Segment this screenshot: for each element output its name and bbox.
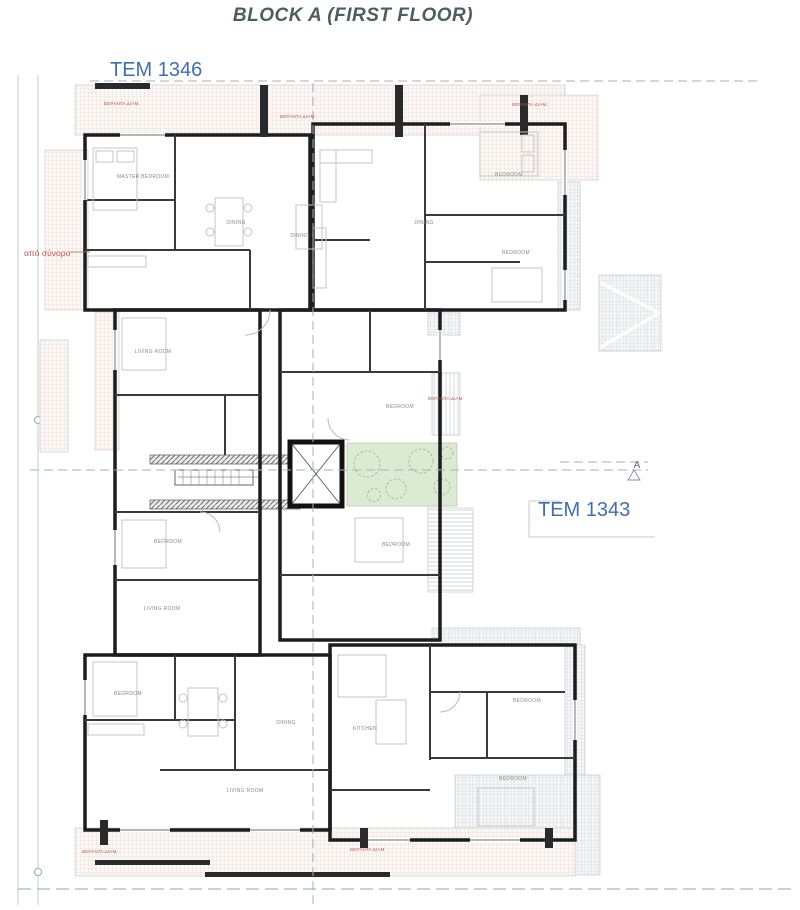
parcel-label-right: TEM 1343	[538, 499, 630, 521]
room-label: LIVING ROOM	[135, 349, 172, 355]
parcel-label-left: TEM 1346	[110, 59, 202, 81]
boundary-note: από σύνορο	[24, 248, 71, 258]
floor-plan-page: A από σύνορο BLOCK A (FIRST FLOOR) TEM 1…	[0, 0, 800, 910]
veranda-label: ΒΕΡΑΝΤΑ ΔΙΑΜ.	[280, 114, 316, 119]
room-label: KITCHEN	[353, 726, 377, 732]
room-label: BEDROOM	[386, 404, 414, 410]
room-label: BEDROOM	[513, 698, 541, 704]
room-label: DINING	[226, 220, 245, 226]
floor-plan-svg: A από σύνορο BLOCK A (FIRST FLOOR) TEM 1…	[0, 0, 800, 910]
room-label: LIVING ROOM	[144, 606, 181, 612]
page-title: BLOCK A (FIRST FLOOR)	[233, 5, 473, 26]
elevator-shaft	[290, 442, 342, 506]
room-label: BEDROOM	[382, 542, 410, 548]
room-label: MASTER BEDROOM	[117, 174, 169, 180]
room-label: BEDROOM	[114, 691, 142, 697]
room-label: DINING	[414, 220, 433, 226]
room-label: LIVING ROOM	[227, 788, 264, 794]
room-label: DINING	[276, 720, 295, 726]
section-marker: A	[628, 460, 641, 480]
roof-skylight	[599, 275, 661, 351]
stair-core	[150, 455, 300, 509]
room-label: BEDROOM	[502, 250, 530, 256]
room-label: BEDROOM	[499, 776, 527, 782]
veranda-label: ΒΕΡΑΝΤΑ ΔΙΑΜ.	[512, 102, 548, 107]
room-label: BEDROOM	[495, 172, 523, 178]
room-label: BEDROOM	[154, 539, 182, 545]
veranda-label: ΒΕΡΑΝΤΑ ΔΙΑΜ.	[428, 396, 464, 401]
veranda-label: ΒΕΡΑΝΤΑ ΔΙΑΜ.	[104, 101, 140, 106]
room-label: DINING	[290, 233, 309, 239]
section-marker-letter: A	[634, 460, 641, 471]
veranda-label: ΒΕΡΑΝΤΑ ΔΙΑΜ.	[350, 847, 386, 852]
veranda-label: ΒΕΡΑΝΤΑ ΔΙΑΜ.	[82, 849, 118, 854]
